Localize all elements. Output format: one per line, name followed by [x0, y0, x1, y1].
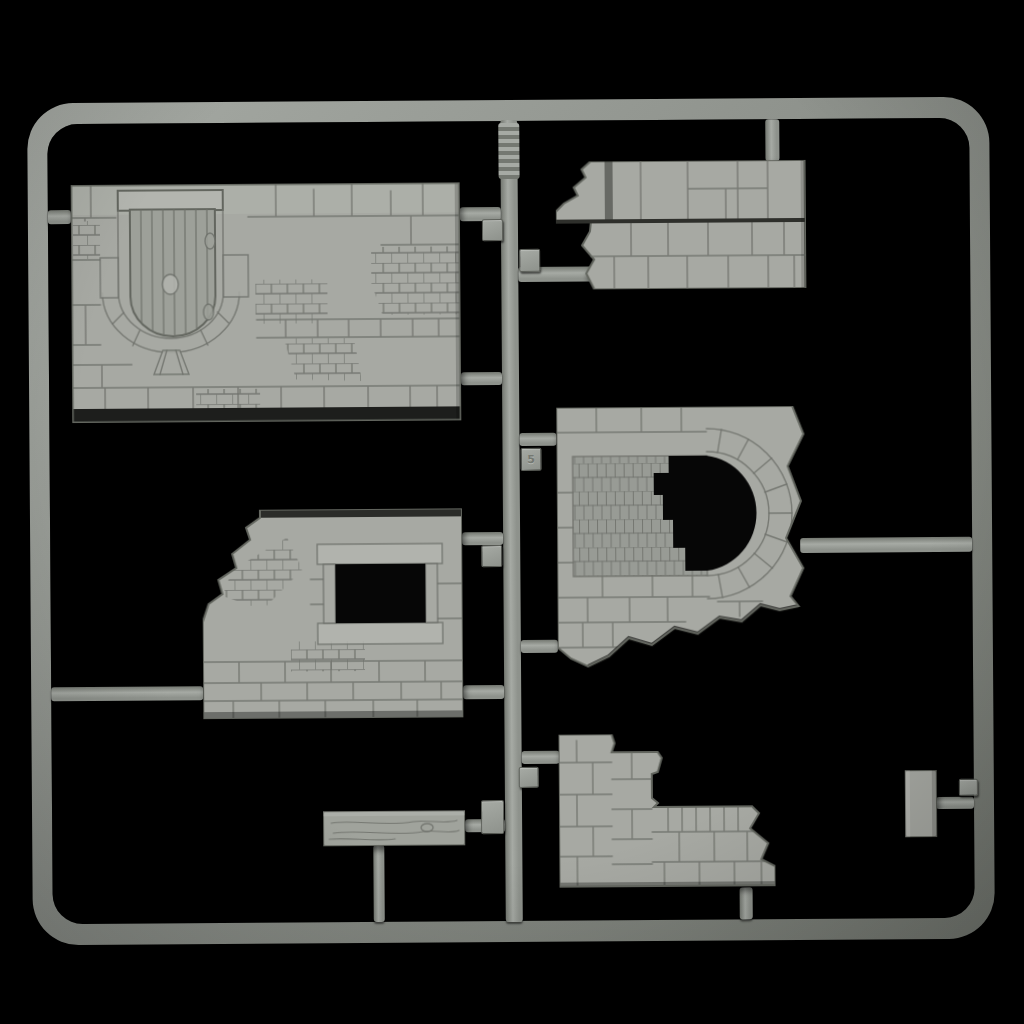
- sprue-connector: [51, 686, 203, 701]
- part-number: 5: [527, 453, 535, 466]
- part-number-tag: [519, 249, 540, 272]
- part-small-panel: [905, 770, 937, 837]
- part-number-tag: [959, 779, 978, 796]
- sprue-connector: [463, 685, 504, 699]
- part-wall-door: [71, 182, 462, 423]
- part-wall-stepped: [558, 733, 775, 890]
- sprue-connector: [800, 537, 972, 553]
- part-number-tag: [482, 219, 503, 241]
- part-number-tag: [481, 800, 504, 834]
- sprue-connector: [740, 887, 753, 919]
- part-wall-arch: [556, 406, 808, 672]
- part-wood-plank: [323, 810, 465, 846]
- part-number-tag: [481, 545, 502, 567]
- sprue-connector: [936, 797, 974, 809]
- sprue-assembly: 5: [0, 0, 1024, 1024]
- sprue-connector: [48, 210, 71, 224]
- sprue-photo: 5: [0, 0, 1024, 1024]
- sprue-connector: [522, 751, 560, 764]
- part-wall-window: [202, 508, 463, 719]
- part-number-tag: 5: [520, 448, 541, 471]
- sprue-runner-ribbed-gate: [498, 123, 519, 179]
- sprue-connector: [765, 119, 779, 161]
- sprue-connector: [373, 845, 385, 922]
- sprue-connector: [519, 433, 556, 446]
- sprue-connector: [461, 372, 502, 385]
- part-wall-broken: [555, 160, 808, 290]
- sprue-connector: [521, 640, 558, 653]
- part-number-tag: [519, 767, 539, 788]
- sprue-connector: [462, 532, 503, 545]
